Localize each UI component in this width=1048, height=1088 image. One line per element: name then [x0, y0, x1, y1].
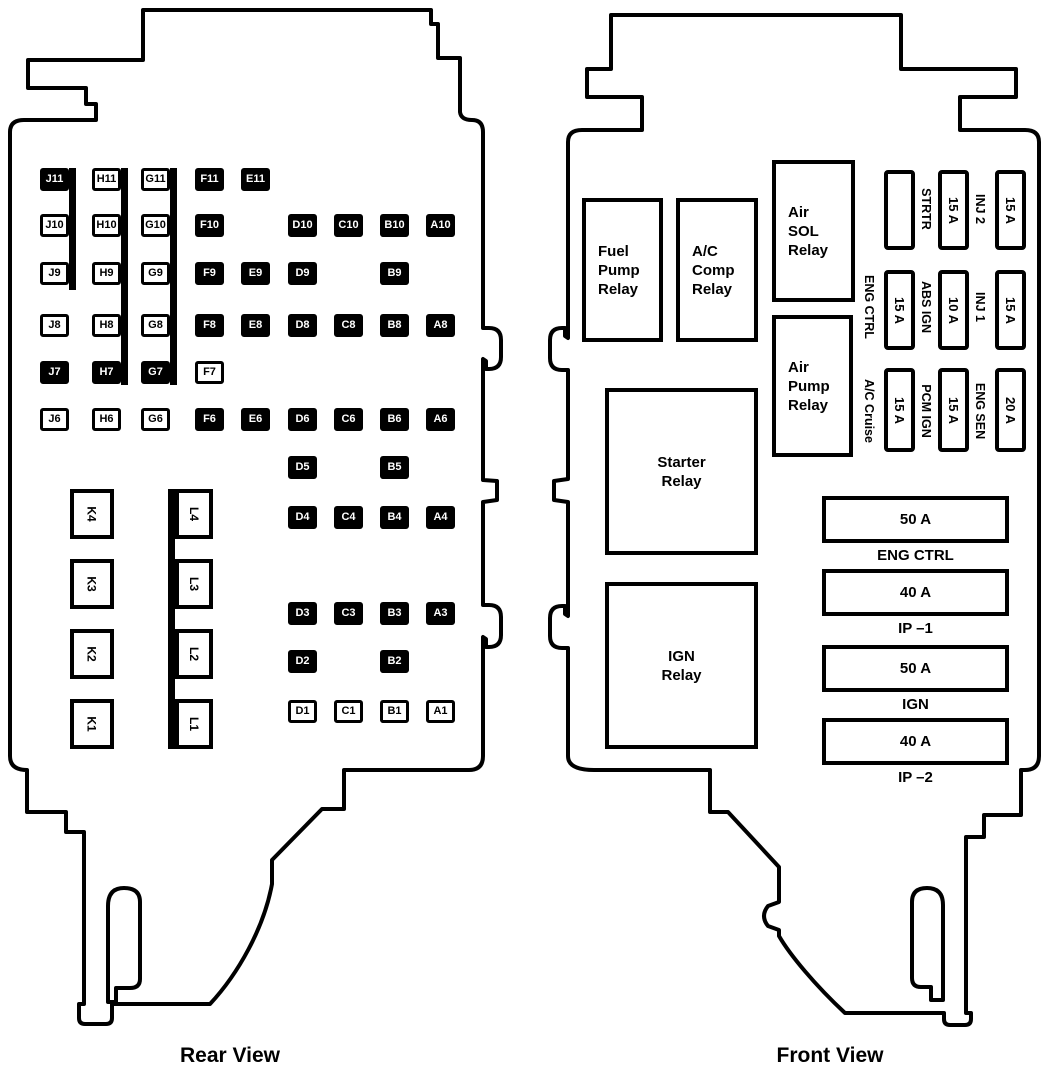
relay-label-line: Relay	[661, 666, 701, 685]
fuse-cell-F11: F11	[195, 168, 224, 191]
relay-block-L4: L4	[175, 489, 213, 539]
fuse-cell-H6: H6	[92, 408, 121, 431]
fuse-cell-F10: F10	[195, 214, 224, 237]
relay-label-line: Relay	[692, 280, 754, 299]
mini-fuse-amps: 15 A	[1003, 197, 1018, 224]
relay-block-L3: L3	[175, 559, 213, 609]
relay-block-label: K2	[85, 646, 99, 661]
fuse-cell-F7: F7	[195, 361, 224, 384]
fuse-cell-B1: B1	[380, 700, 409, 723]
fuse-cell-G9: G9	[141, 262, 170, 285]
maxi-fuse-label-0: ENG CTRL	[822, 547, 1009, 564]
fuse-cell-A1: A1	[426, 700, 455, 723]
fuse-cell-A10: A10	[426, 214, 455, 237]
relay-label-line: Fuel	[598, 242, 659, 261]
fuse-cell-C8: C8	[334, 314, 363, 337]
mini-fuse-amps: 10 A	[946, 297, 961, 324]
relay-label-line: Relay	[788, 241, 851, 260]
fuse-cell-E11: E11	[241, 168, 270, 191]
relay-air-sol: AirSOLRelay	[772, 160, 855, 302]
fuse-cell-B3: B3	[380, 602, 409, 625]
fuse-cell-B2: B2	[380, 650, 409, 673]
mini-fuse-amps: 15 A	[1003, 297, 1018, 324]
relay-label-line: Comp	[692, 261, 754, 280]
fuse-cell-J8: J8	[40, 314, 69, 337]
relay-label-line: A/C	[692, 242, 754, 261]
fuse-box-diagram: J11H11G11F11E11J10H10G10F10D10C10B10A10J…	[0, 0, 1048, 1088]
mini-fuse-2-2: 10 A	[938, 270, 969, 350]
relay-label-line: IGN	[668, 647, 695, 666]
fuse-cell-H7: H7	[92, 361, 121, 384]
mini-fuse-3-1: 15 A	[884, 368, 915, 452]
mini-fuse-1-3: 15 A	[995, 170, 1026, 250]
fuse-cell-B10: B10	[380, 214, 409, 237]
fuse-cell-G11: G11	[141, 168, 170, 191]
mini-fuse-1-1	[884, 170, 915, 250]
fuse-cell-E9: E9	[241, 262, 270, 285]
fuse-cell-D4: D4	[288, 506, 317, 529]
mini-fuse-amps: 15 A	[892, 397, 907, 424]
fuse-cell-D8: D8	[288, 314, 317, 337]
fuse-cell-H10: H10	[92, 214, 121, 237]
fuse-label-a-c-cruise: A/C Cruise	[862, 311, 876, 511]
fuse-cell-C1: C1	[334, 700, 363, 723]
fuse-cell-C4: C4	[334, 506, 363, 529]
panel-outlines	[0, 0, 1048, 1088]
bus-bar-j	[69, 168, 76, 290]
maxi-fuse-2: 50 A	[822, 645, 1009, 692]
fuse-cell-J6: J6	[40, 408, 69, 431]
rear-view-caption: Rear View	[120, 1044, 340, 1068]
relay-label-line: Air	[788, 203, 851, 222]
fuse-cell-C3: C3	[334, 602, 363, 625]
fuse-cell-E8: E8	[241, 314, 270, 337]
fuse-cell-E6: E6	[241, 408, 270, 431]
fuse-cell-A4: A4	[426, 506, 455, 529]
mini-fuse-1-2: 15 A	[938, 170, 969, 250]
mini-fuse-2-1: 15 A	[884, 270, 915, 350]
relay-ac-comp: A/CCompRelay	[676, 198, 758, 342]
relay-label-line: Relay	[598, 280, 659, 299]
fuse-cell-C6: C6	[334, 408, 363, 431]
fuse-cell-D10: D10	[288, 214, 317, 237]
fuse-cell-F6: F6	[195, 408, 224, 431]
rear-panel-blade	[108, 888, 140, 1002]
relay-label-line: Air	[788, 358, 849, 377]
fuse-label-eng-sen: ENG SEN	[973, 311, 987, 511]
relay-label-line: Relay	[788, 396, 849, 415]
relay-block-label: L1	[187, 717, 201, 731]
mini-fuse-amps: 15 A	[946, 397, 961, 424]
fuse-cell-J10: J10	[40, 214, 69, 237]
relay-block-label: K3	[85, 576, 99, 591]
fuse-cell-J7: J7	[40, 361, 69, 384]
front-view-caption: Front View	[720, 1044, 940, 1068]
fuse-cell-B4: B4	[380, 506, 409, 529]
fuse-cell-A6: A6	[426, 408, 455, 431]
fuse-cell-A3: A3	[426, 602, 455, 625]
maxi-fuse-label-1: IP –1	[822, 620, 1009, 637]
relay-block-L2: L2	[175, 629, 213, 679]
relay-block-K4: K4	[70, 489, 114, 539]
relay-label-line: Relay	[661, 472, 701, 491]
fuse-cell-D5: D5	[288, 456, 317, 479]
fuse-cell-G6: G6	[141, 408, 170, 431]
fuse-cell-H11: H11	[92, 168, 121, 191]
mini-fuse-amps: 15 A	[892, 297, 907, 324]
mini-fuse-amps: 15 A	[946, 197, 961, 224]
relay-block-K3: K3	[70, 559, 114, 609]
mini-fuse-3-2: 15 A	[938, 368, 969, 452]
fuse-cell-H8: H8	[92, 314, 121, 337]
relay-block-label: L2	[187, 647, 201, 661]
fuse-cell-B6: B6	[380, 408, 409, 431]
relay-block-K2: K2	[70, 629, 114, 679]
bus-bar-h	[121, 168, 128, 385]
mini-fuse-2-3: 15 A	[995, 270, 1026, 350]
fuse-cell-G8: G8	[141, 314, 170, 337]
bus-bar-l	[168, 489, 175, 749]
relay-label-line: Starter	[657, 453, 705, 472]
fuse-cell-F8: F8	[195, 314, 224, 337]
relay-block-label: L3	[187, 577, 201, 591]
relay-air-pump: AirPumpRelay	[772, 315, 853, 457]
fuse-cell-J11: J11	[40, 168, 69, 191]
relay-label-line: Pump	[788, 377, 849, 396]
fuse-label-pcm-ign: PCM IGN	[919, 311, 933, 511]
fuse-cell-G10: G10	[141, 214, 170, 237]
maxi-fuse-label-3: IP –2	[822, 769, 1009, 786]
relay-block-label: K1	[85, 716, 99, 731]
fuse-cell-G7: G7	[141, 361, 170, 384]
relay-block-label: K4	[85, 506, 99, 521]
relay-block-K1: K1	[70, 699, 114, 749]
mini-fuse-amps: 20 A	[1003, 397, 1018, 424]
fuse-cell-D3: D3	[288, 602, 317, 625]
fuse-cell-F9: F9	[195, 262, 224, 285]
relay-fuel-pump: FuelPumpRelay	[582, 198, 663, 342]
fuse-cell-D9: D9	[288, 262, 317, 285]
fuse-cell-B5: B5	[380, 456, 409, 479]
fuse-cell-D2: D2	[288, 650, 317, 673]
fuse-cell-H9: H9	[92, 262, 121, 285]
relay-block-L1: L1	[175, 699, 213, 749]
fuse-cell-B8: B8	[380, 314, 409, 337]
front-panel-blade	[912, 888, 943, 1000]
maxi-fuse-label-2: IGN	[822, 696, 1009, 713]
fuse-cell-B9: B9	[380, 262, 409, 285]
relay-label-line: SOL	[788, 222, 851, 241]
maxi-fuse-0: 50 A	[822, 496, 1009, 543]
fuse-cell-C10: C10	[334, 214, 363, 237]
fuse-cell-J9: J9	[40, 262, 69, 285]
fuse-cell-A8: A8	[426, 314, 455, 337]
maxi-fuse-1: 40 A	[822, 569, 1009, 616]
mini-fuse-3-3: 20 A	[995, 368, 1026, 452]
relay-ign: IGNRelay	[605, 582, 758, 749]
relay-block-label: L4	[187, 507, 201, 521]
relay-starter: StarterRelay	[605, 388, 758, 555]
maxi-fuse-3: 40 A	[822, 718, 1009, 765]
bus-bar-g	[170, 168, 177, 385]
fuse-cell-D6: D6	[288, 408, 317, 431]
relay-label-line: Pump	[598, 261, 659, 280]
fuse-cell-D1: D1	[288, 700, 317, 723]
